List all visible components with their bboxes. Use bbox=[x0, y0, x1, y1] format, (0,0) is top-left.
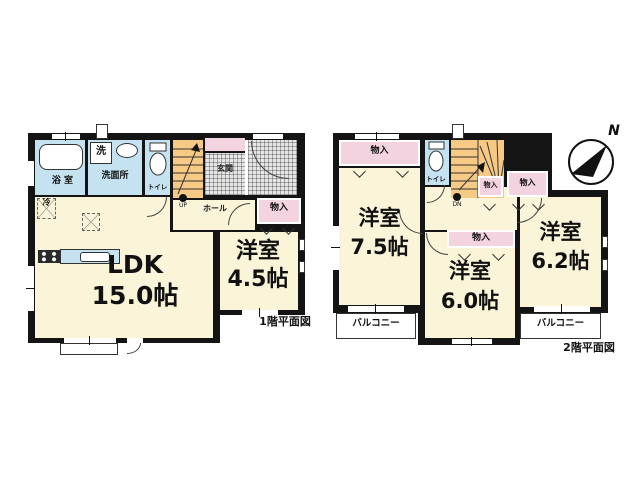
toilet-label: トイレ bbox=[143, 184, 172, 191]
window-tick bbox=[375, 304, 376, 314]
window-tick bbox=[471, 337, 472, 346]
floor-plan-canvas: 洗 LDK 15.0帖 洋室 4.5帖 浴 室 洗面所 トイレ ホール 物入 玄… bbox=[0, 0, 635, 480]
compass-north-label: N bbox=[604, 124, 624, 139]
window-shutter bbox=[602, 259, 608, 271]
floor1-stairs bbox=[173, 140, 203, 198]
floor1-entrance-inner bbox=[205, 153, 245, 195]
floor1-shoe-cabinet bbox=[205, 138, 245, 151]
closet-hall-2-label: 物入 bbox=[507, 179, 548, 187]
window-tick bbox=[65, 132, 66, 141]
window bbox=[52, 134, 80, 139]
yoshitsu-name: 洋室 bbox=[218, 240, 298, 263]
stairs-down-label: DN bbox=[443, 202, 471, 208]
back-door bbox=[96, 124, 108, 139]
window bbox=[355, 134, 399, 139]
entrance-label: 玄関 bbox=[207, 165, 243, 173]
closet-label: 物入 bbox=[257, 204, 301, 213]
room-7-5-size: 7.5帖 bbox=[339, 236, 420, 258]
bath-label: 浴 室 bbox=[40, 177, 85, 186]
room-6-2-name: 洋室 bbox=[520, 221, 601, 243]
window bbox=[534, 306, 590, 312]
window-shutter bbox=[602, 236, 608, 248]
ldk-name: LDK bbox=[75, 252, 195, 278]
entrance-opening bbox=[253, 134, 283, 139]
room-6-2-size: 6.2帖 bbox=[520, 250, 601, 272]
floor-hatch bbox=[82, 213, 100, 231]
window-tick bbox=[561, 304, 562, 314]
balcony-right-label: バルコニー bbox=[520, 319, 601, 329]
room-6-0-name: 洋室 bbox=[425, 260, 515, 282]
window-shutter bbox=[299, 239, 305, 251]
closet-hall-1-label: 物入 bbox=[477, 182, 504, 189]
toilet-icon bbox=[427, 141, 447, 175]
bathtub-icon bbox=[39, 144, 83, 170]
window-tick bbox=[376, 132, 377, 141]
closet-top-label: 物入 bbox=[339, 147, 420, 156]
toilet2-label: トイレ bbox=[421, 176, 451, 183]
ldk-size: 15.0帖 bbox=[75, 283, 195, 309]
room-7-5-name: 洋室 bbox=[339, 207, 420, 229]
window-shutter bbox=[299, 261, 305, 273]
window bbox=[64, 338, 116, 343]
toilet-icon bbox=[147, 142, 169, 180]
window bbox=[28, 161, 34, 186]
stairs-treads-icon bbox=[173, 140, 203, 198]
floor2-title: 2階平面図 bbox=[552, 342, 626, 354]
window bbox=[452, 339, 492, 344]
stairwell-window bbox=[452, 124, 464, 139]
balcony-left-label: バルコニー bbox=[336, 319, 416, 329]
door-opening bbox=[127, 338, 143, 343]
room-6-0-size: 6.0帖 bbox=[425, 290, 515, 312]
floor1-title: 1階平面図 bbox=[248, 316, 322, 328]
washbasin-icon bbox=[116, 143, 138, 158]
stove-icon bbox=[38, 250, 60, 263]
terrace-door-arc bbox=[127, 343, 141, 354]
fridge-label: 冷 bbox=[38, 199, 55, 207]
stairs-up-label: UP bbox=[168, 203, 198, 209]
yoshitsu-size: 4.5帖 bbox=[218, 268, 298, 291]
closet-mid-label: 物入 bbox=[447, 234, 515, 243]
window bbox=[348, 306, 404, 312]
washroom-label: 洗面所 bbox=[88, 172, 142, 181]
window-tick bbox=[26, 288, 35, 289]
washing-machine-label: 洗 bbox=[90, 147, 112, 158]
stairs-down-dot bbox=[453, 193, 461, 201]
stairs-up-dot bbox=[179, 194, 187, 202]
window-tick bbox=[89, 336, 90, 345]
hall-label: ホール bbox=[195, 205, 235, 213]
